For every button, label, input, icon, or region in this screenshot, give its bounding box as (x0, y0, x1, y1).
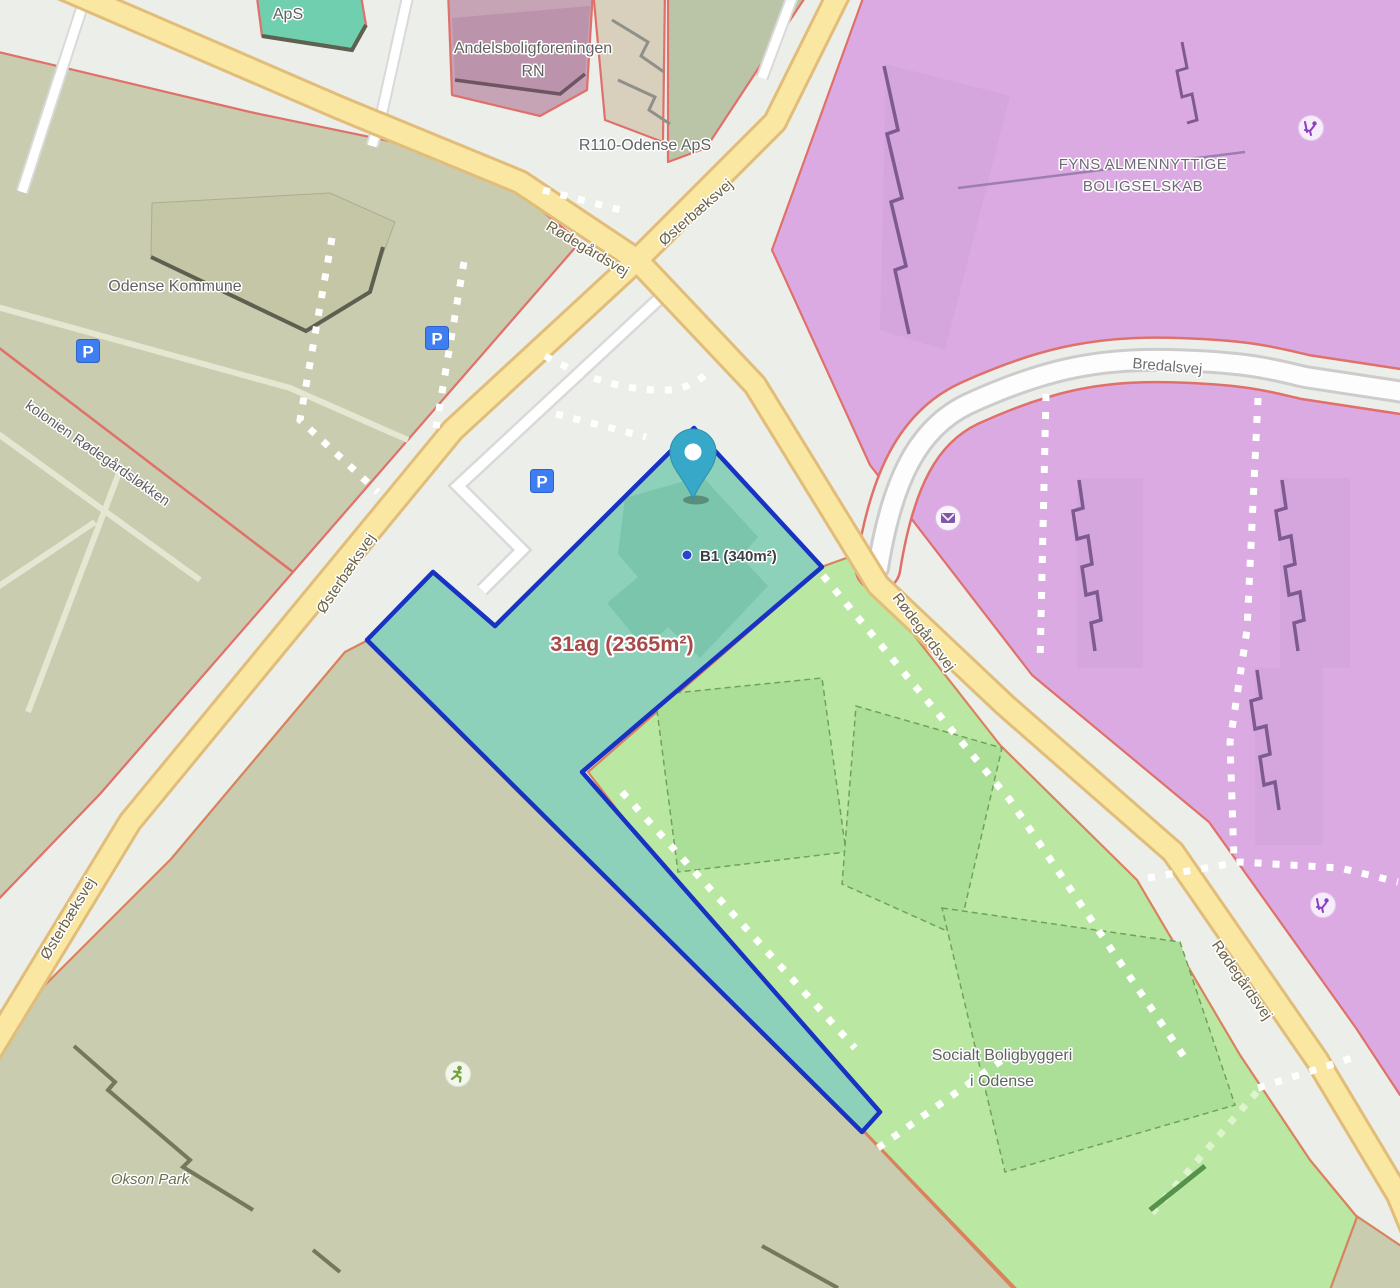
playground-icon[interactable] (1299, 116, 1324, 141)
svg-text:P: P (536, 473, 547, 492)
label-andelsboligforeningen-2: RN (521, 63, 544, 80)
map-canvas[interactable]: ApS Andelsboligforeningen RN R110-Odense… (0, 0, 1400, 1288)
label-socialt-2: i Odense (970, 1073, 1034, 1090)
svg-text:P: P (82, 343, 93, 362)
label-fyns-2: BOLIGSELSKAB (1083, 178, 1203, 195)
svg-text:P: P (431, 330, 442, 349)
label-okson-park: Okson Park (111, 1171, 191, 1188)
parking-icon[interactable]: P (531, 470, 554, 493)
label-socialt-1: Socialt Boligbyggeri (932, 1047, 1073, 1064)
label-r110: R110-Odense ApS (579, 137, 711, 154)
label-odense-kommune: Odense Kommune (108, 278, 242, 295)
parking-icon[interactable]: P (77, 340, 100, 363)
label-aps: ApS (273, 6, 303, 23)
playground-icon[interactable] (1311, 893, 1336, 918)
park-runner-icon[interactable] (446, 1062, 471, 1087)
post-office-icon[interactable] (936, 506, 961, 531)
label-parcel-31ag: 31ag (2365m²) (550, 632, 693, 656)
b1-dot (682, 550, 692, 560)
label-building-b1: B1 (340m²) (700, 548, 777, 565)
parking-icon[interactable]: P (426, 327, 449, 350)
label-fyns-1: FYNS ALMENNYTTIGE (1059, 156, 1228, 173)
label-andelsboligforeningen-1: Andelsboligforeningen (454, 40, 612, 57)
